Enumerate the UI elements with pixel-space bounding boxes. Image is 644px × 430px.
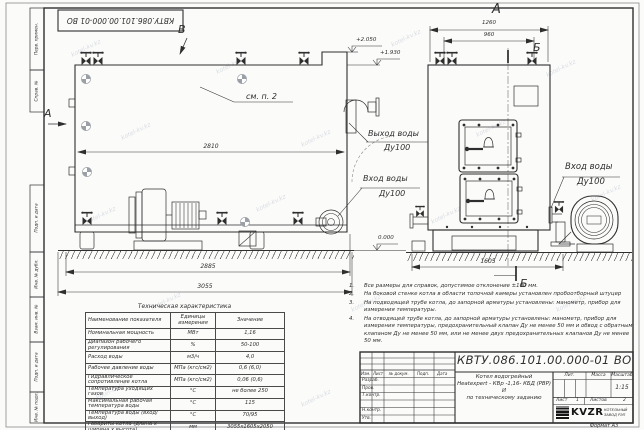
inlet-dn-label-side: Ду100	[379, 190, 405, 198]
margin-label-inv-podl: Инв. № подл.	[35, 392, 40, 422]
inlet-label-side: Вход воды	[363, 175, 408, 183]
spec-units: МВт	[171, 329, 216, 340]
dim-label-1260: 1260	[469, 21, 509, 27]
spec-col-value: Значение	[216, 313, 285, 329]
elevation-label-1930: +1.930	[380, 51, 400, 57]
margin-label-perv-primen: Перв. примен.	[35, 23, 40, 55]
view-label-a-front: А	[492, 3, 501, 16]
inlet-dn-label-front: Ду100	[577, 178, 605, 187]
note-text: На подводящей трубе котла, до запорной а…	[364, 300, 634, 315]
row-utv: Утв.	[362, 417, 371, 421]
scale-value: 1:15	[611, 385, 633, 391]
inlet-flange	[316, 210, 343, 234]
spec-value: 50-100	[216, 340, 285, 352]
dim-label-2885: 2885	[188, 264, 228, 270]
mass-header: Масса	[586, 374, 611, 379]
spec-value: не более 250	[216, 386, 285, 398]
lower-door	[460, 174, 522, 223]
outlet-dn-label: Ду100	[384, 144, 410, 152]
spec-units: °С	[171, 386, 216, 398]
format-note: Формат А3	[575, 424, 633, 429]
spec-table-title: Техническая характеристика	[85, 304, 284, 310]
spec-name: Температура воды (вход/выход)	[86, 410, 171, 422]
spec-name: Расход воды	[86, 352, 171, 363]
spec-units: °С	[171, 398, 216, 410]
spec-name: Габариты котла (длина х ширина х высота)	[86, 422, 171, 430]
notes-list: 1. Все размеры для справок, допустимое о…	[346, 283, 634, 347]
outlet-label: Выход воды	[368, 130, 419, 138]
upper-door	[459, 120, 521, 172]
note-text: Все размеры для справок, допустимое откл…	[364, 283, 634, 290]
section-label-b-top: Б	[533, 42, 541, 53]
view-label-b: В	[178, 24, 186, 35]
spec-name: Рабочее давление воды	[86, 363, 171, 374]
margin-label-podp-data-1: Подп. и дата	[35, 203, 40, 232]
valve-icon	[92, 52, 103, 65]
company-line-2: ЗАВОД РЭП	[604, 413, 627, 418]
spec-row: Температура уходящих газов°Сне более 250	[86, 386, 285, 398]
center-marker-icon	[237, 74, 246, 83]
name-line-1: Котел водогрейный	[456, 374, 552, 381]
title-block-name: Котел водогрейный Heatexpert - КВр -1,16…	[456, 374, 552, 402]
spec-name: Температура уходящих газов	[86, 386, 171, 398]
sheet-value: 1	[576, 399, 579, 404]
dim-label-3055: 3055	[185, 284, 225, 290]
company-name: КОТЕЛЬНЫЙ ЗАВОД РЭП	[604, 408, 627, 417]
spec-name: Гидравлическое сопротивление котла	[86, 374, 171, 386]
valve-icon	[446, 52, 457, 65]
note-item: 2. На боковой стенке котла в области топ…	[346, 291, 634, 298]
boiler-side-view	[48, 38, 428, 296]
title-block-doc-number: КВТУ.086.101.00.000-01 ВО	[457, 355, 631, 367]
spec-col-name: Наименование показателя	[86, 313, 171, 329]
note-number: 3.	[346, 300, 364, 315]
margin-label-vzam-inv: Взам. инв. №	[35, 304, 40, 333]
center-marker-icon	[81, 121, 90, 130]
left-pipe-fitting	[410, 206, 428, 251]
spec-row: Максимальная рабочая температура воды°С1…	[86, 398, 285, 410]
row-nkontr: Н.контр.	[362, 409, 381, 413]
spec-value: 115	[216, 398, 285, 410]
margin-label-inv-dubl: Инв. № дубл.	[35, 259, 40, 288]
dim-label-2810: 2810	[191, 144, 231, 150]
spec-name: Диапазон рабочего регулирования	[86, 340, 171, 352]
elevation-2050	[347, 46, 382, 52]
spec-row: Расход водым3/ч4,0	[86, 352, 285, 363]
sheets-value: 2	[623, 399, 626, 404]
scale-header: Масштаб	[611, 374, 633, 379]
lit-header: Лит.	[553, 374, 586, 379]
boiler-base	[433, 226, 538, 251]
name-line-3: по техническому заданию	[456, 395, 552, 402]
elevation-1930	[347, 59, 400, 65]
spec-row: Температура воды (вход/выход)°С70/95	[86, 410, 285, 422]
leader-inlet-side	[338, 188, 362, 216]
spec-units: м3/ч	[171, 352, 216, 363]
note-number: 2.	[346, 291, 364, 298]
view-arrow-b	[180, 38, 187, 54]
spec-units: °С	[171, 410, 216, 422]
spec-units: мм	[171, 422, 216, 430]
kvzr-logo-icon	[556, 406, 569, 419]
valve-icon	[216, 212, 227, 225]
spec-header-row: Наименование показателя Единицы измерени…	[86, 313, 285, 329]
spec-row: Габариты котла (длина х ширина х высота)…	[86, 422, 285, 430]
margin-label-sprav-no: Справ. №	[35, 81, 40, 102]
note-number: 1.	[346, 283, 364, 290]
th-izm: Изм.	[361, 372, 370, 376]
elevation-0000	[373, 244, 398, 250]
row-tkontr: Т.контр.	[362, 394, 381, 398]
spec-row: Рабочее давление водыМПа (кгс/см2)0,6 (6…	[86, 363, 285, 374]
inlet-pipe-and-fan	[549, 196, 618, 252]
margin-label-podp-data-2: Подп. и дата	[35, 352, 40, 381]
leader-inlet-front	[551, 177, 564, 208]
spec-row: Номинальная мощностьМВт1,16	[86, 329, 285, 340]
th-list: Лист	[373, 372, 383, 376]
spec-units: %	[171, 340, 216, 352]
note-item: 3. На подводящей трубе котла, до запорно…	[346, 300, 634, 315]
elevation-label-2050: +2.050	[356, 38, 376, 44]
valve-icon	[80, 52, 91, 65]
dim-label-1605: 1605	[468, 259, 508, 265]
company-line-1: КОТЕЛЬНЫЙ	[604, 408, 627, 413]
spec-value: 0,06 (0,6)	[216, 374, 285, 386]
sheet-label: Лист	[556, 399, 567, 404]
spec-name: Максимальная рабочая температура воды	[86, 398, 171, 410]
row-prov: Пров.	[362, 387, 375, 391]
valve-icon	[81, 212, 92, 225]
valve-icon	[235, 52, 246, 65]
see-note-label: см. п. 2	[246, 93, 277, 101]
valve-icon	[292, 212, 303, 225]
spec-name: Номинальная мощность	[86, 329, 171, 340]
outlet-pipe	[344, 98, 392, 182]
name-line-2: Heatexpert - КВр -1,16- КБД (РВР) И	[456, 381, 552, 395]
spec-row: Диапазон рабочего регулирования%50-100	[86, 340, 285, 352]
note-text: На боковой стенке котла в области топочн…	[364, 291, 634, 298]
sheets-label: Листов	[590, 399, 607, 404]
note-text: На отводящей трубе котла, до запорной ар…	[364, 316, 634, 346]
drawing-sheet: kotel-kv.kz kotel-kv.kz kotel-kv.kz kote…	[0, 0, 644, 430]
center-marker-icon	[82, 167, 91, 176]
elevation-label-0000: 0.000	[378, 236, 394, 242]
spec-table: Наименование показателя Единицы измерени…	[85, 312, 285, 430]
pump-unit	[129, 189, 206, 250]
note-number: 4.	[346, 316, 364, 346]
spec-units: МПа (кгс/см2)	[171, 374, 216, 386]
view-label-a-side: А	[44, 108, 52, 119]
leader-outlet	[349, 123, 368, 142]
spec-units: МПа (кгс/см2)	[171, 363, 216, 374]
boiler-front-view	[406, 26, 632, 281]
valve-icon	[298, 52, 309, 65]
company-logo: KVZR	[556, 406, 603, 419]
spec-value: 4,0	[216, 352, 285, 363]
spec-col-units: Единицы измерения	[171, 313, 216, 329]
note-item: 1. Все размеры для справок, допустимое о…	[346, 283, 634, 290]
note-item: 4. На отводящей трубе котла, до запорной…	[346, 316, 634, 346]
sight-opening	[514, 86, 538, 106]
spec-value: 1,16	[216, 329, 285, 340]
corner-stamp-doc-number: КВТУ.086.101.00.000-01 ВО	[58, 10, 183, 31]
spec-value: 70/95	[216, 410, 285, 422]
th-docum: № докум.	[389, 372, 409, 376]
center-marker-icon	[81, 74, 90, 83]
inlet-label-front: Вход воды	[565, 163, 612, 172]
row-razrab: Разраб.	[362, 379, 379, 383]
center-marker-icon	[240, 217, 249, 226]
spec-value: 0,6 (6,0)	[216, 363, 285, 374]
th-podp: Подп.	[417, 372, 429, 376]
spec-value: 3055х1605х2050	[216, 422, 285, 430]
dim-label-960: 960	[469, 33, 509, 39]
kvzr-logo-text: KVZR	[571, 407, 603, 418]
spec-row: Гидравлическое сопротивление котлаМПа (к…	[86, 374, 285, 386]
th-data: Дата	[437, 372, 447, 376]
